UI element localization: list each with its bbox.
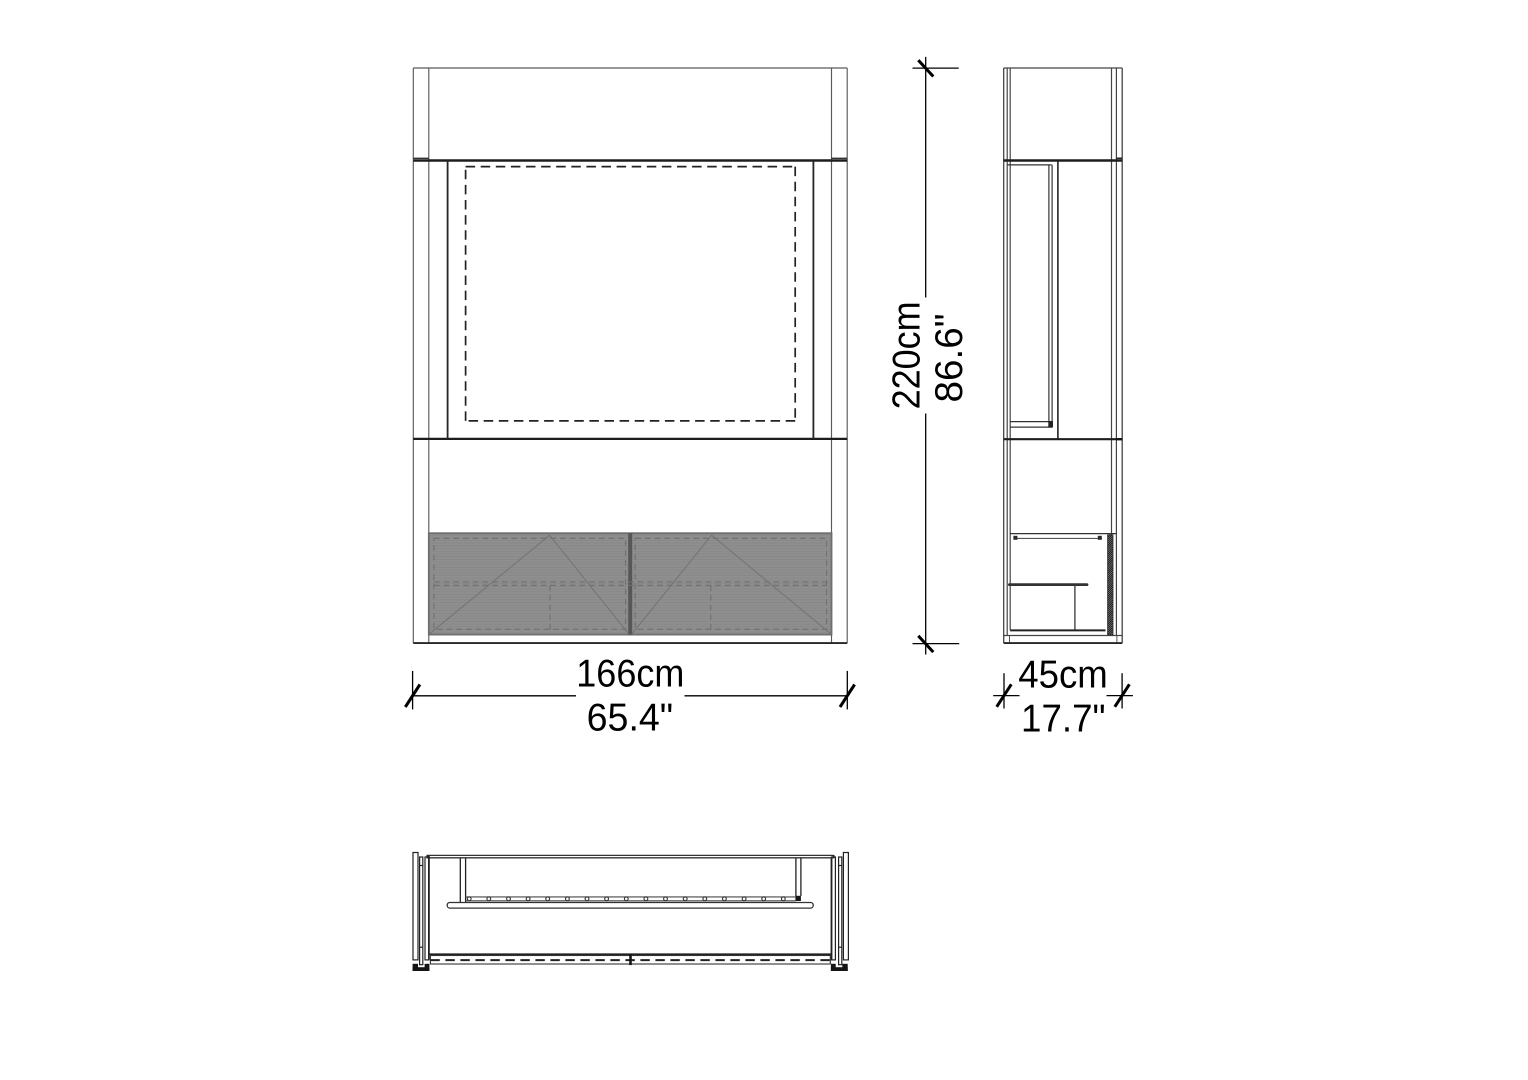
- svg-text:166cm: 166cm: [576, 653, 684, 696]
- svg-text:86.6": 86.6": [928, 314, 971, 403]
- svg-text:45cm: 45cm: [1018, 654, 1108, 697]
- svg-text:65.4": 65.4": [587, 697, 674, 740]
- svg-text:220cm: 220cm: [886, 301, 929, 409]
- svg-text:17.7": 17.7": [1021, 697, 1106, 740]
